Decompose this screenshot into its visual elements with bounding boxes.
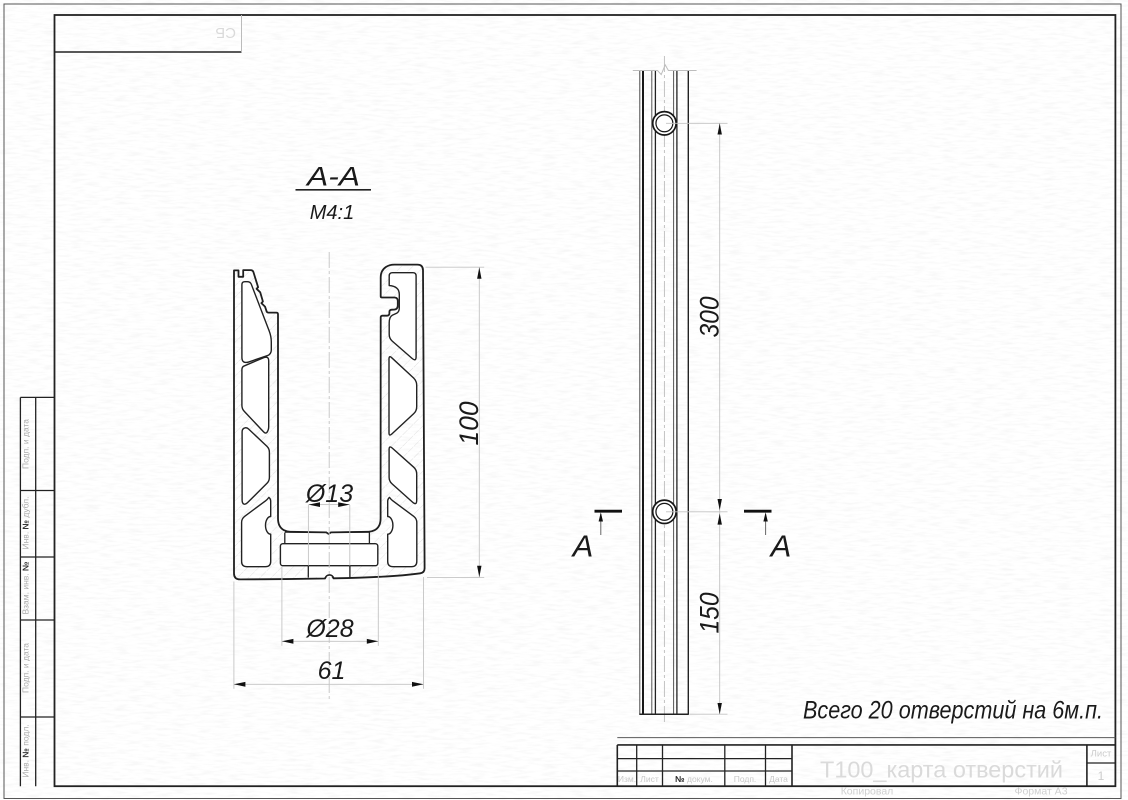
svg-text:300: 300 [695, 297, 725, 338]
svg-text:Всего 20 отверстий на 6м.п.: Всего 20 отверстий на 6м.п. [803, 697, 1103, 725]
svg-text:1: 1 [1098, 769, 1105, 783]
svg-text:Ø13: Ø13 [305, 480, 353, 508]
svg-text:А: А [571, 529, 594, 564]
svg-text:Изм.: Изм. [618, 774, 636, 784]
svg-text:Подп.: Подп. [734, 774, 757, 784]
svg-text:100: 100 [454, 402, 484, 446]
svg-text:61: 61 [318, 657, 346, 685]
svg-text:Инв. № подл.: Инв. № подл. [21, 724, 31, 777]
svg-text:150: 150 [695, 593, 725, 634]
svg-text:Лист: Лист [1091, 749, 1112, 760]
svg-text:Дата: Дата [769, 774, 788, 784]
svg-text:Подп. и дата: Подп. и дата [21, 643, 31, 693]
svg-text:Подп. и дата: Подп. и дата [21, 419, 31, 469]
svg-text:Инв. № дубл.: Инв. № дубл. [21, 496, 31, 549]
svg-text:Формат А3: Формат А3 [1014, 786, 1067, 798]
svg-text:А: А [769, 529, 792, 564]
svg-text:М4:1: М4:1 [310, 202, 354, 224]
svg-text:Ø28: Ø28 [305, 615, 353, 643]
svg-text:А-А: А-А [305, 162, 360, 192]
svg-text:Копировал: Копировал [841, 786, 894, 798]
svg-text:№ докум.: № докум. [675, 774, 713, 784]
svg-text:СБ: СБ [215, 24, 236, 41]
svg-text:Лист: Лист [640, 774, 659, 784]
svg-text:Взам. инв. №: Взам. инв. № [21, 561, 31, 615]
svg-text:Т100_карта отверстий: Т100_карта отверстий [820, 757, 1063, 783]
